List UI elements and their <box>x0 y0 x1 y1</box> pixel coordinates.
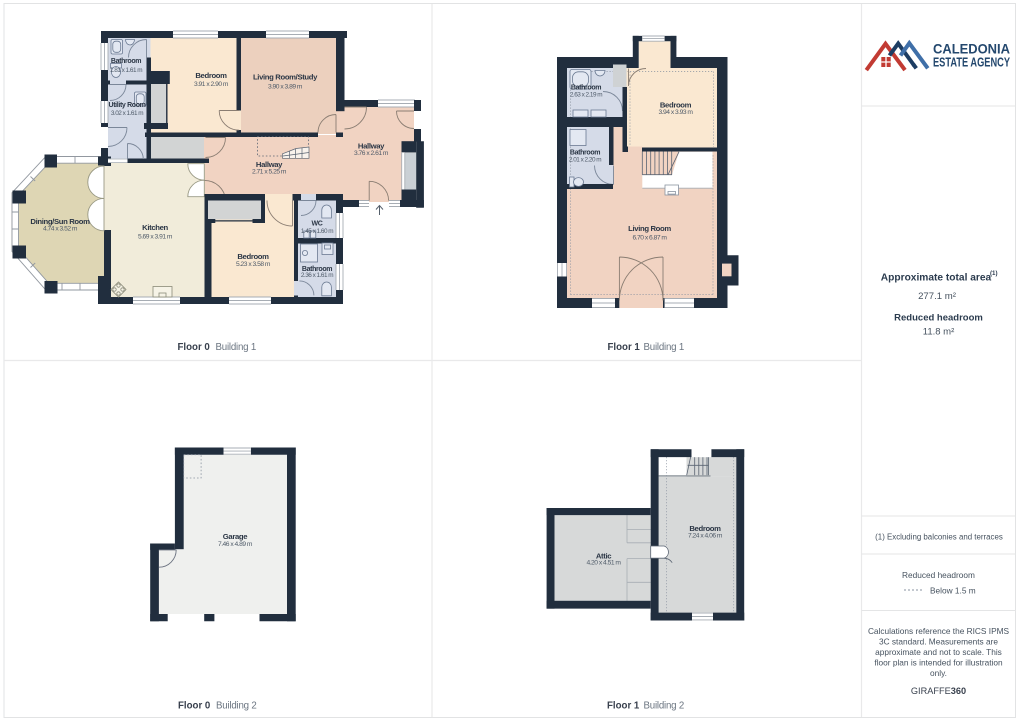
svg-text:Living Room: Living Room <box>628 224 671 233</box>
svg-text:Utility Room: Utility Room <box>108 102 145 109</box>
svg-text:Building 2: Building 2 <box>216 701 257 712</box>
svg-text:Garage: Garage <box>223 532 248 541</box>
svg-text:Calculations reference the RIC: Calculations reference the RICS IPMS <box>868 626 1010 636</box>
svg-text:Floor 0: Floor 0 <box>178 701 210 712</box>
svg-text:Kitchen: Kitchen <box>142 223 168 232</box>
svg-text:2.71 x 5.25 m: 2.71 x 5.25 m <box>252 169 287 176</box>
svg-text:Building 1: Building 1 <box>644 342 685 353</box>
svg-text:3.76 x 2.61 m: 3.76 x 2.61 m <box>354 150 389 157</box>
svg-text:Bedroom: Bedroom <box>660 101 692 110</box>
svg-text:11.8 m²: 11.8 m² <box>923 327 955 338</box>
svg-text:(1) Excluding balconies and te: (1) Excluding balconies and terraces <box>875 533 1003 542</box>
svg-text:6.70 x 6.87 m: 6.70 x 6.87 m <box>632 235 667 242</box>
svg-text:3.90 x 3.89 m: 3.90 x 3.89 m <box>268 84 303 91</box>
svg-text:Building 1: Building 1 <box>216 342 257 353</box>
svg-text:Bedroom: Bedroom <box>237 252 269 261</box>
svg-text:Bedroom: Bedroom <box>195 71 227 80</box>
svg-text:4.74 x 3.52 m: 4.74 x 3.52 m <box>43 226 78 233</box>
svg-text:3C standard. Measurements are: 3C standard. Measurements are <box>879 637 998 647</box>
svg-text:only.: only. <box>930 668 947 678</box>
svg-text:4.20 x 4.51 m: 4.20 x 4.51 m <box>586 560 621 567</box>
svg-text:7.46 x 4.89 m: 7.46 x 4.89 m <box>218 541 253 548</box>
svg-text:3.94 x 3.93 m: 3.94 x 3.93 m <box>658 109 693 116</box>
svg-text:Floor 1: Floor 1 <box>607 701 640 712</box>
svg-text:3.02 x 1.61 m: 3.02 x 1.61 m <box>111 110 143 117</box>
svg-text:(1): (1) <box>990 270 998 277</box>
svg-text:Below 1.5 m: Below 1.5 m <box>930 586 976 596</box>
svg-text:1.45 x 1.60 m: 1.45 x 1.60 m <box>301 228 333 235</box>
svg-text:2.36 x 1.61 m: 2.36 x 1.61 m <box>301 272 333 279</box>
svg-text:3.91 x 2.90 m: 3.91 x 2.90 m <box>194 81 229 88</box>
svg-text:Reduced headroom: Reduced headroom <box>902 570 975 580</box>
svg-text:WC: WC <box>312 221 323 228</box>
svg-text:Floor 1: Floor 1 <box>608 342 641 353</box>
svg-text:Building 2: Building 2 <box>644 701 685 712</box>
svg-text:Floor 0: Floor 0 <box>178 342 210 353</box>
svg-text:5.69 x 3.91 m: 5.69 x 3.91 m <box>138 234 173 241</box>
svg-text:1.81 x 1.61 m: 1.81 x 1.61 m <box>110 67 142 74</box>
svg-text:Living Room/Study: Living Room/Study <box>253 73 318 82</box>
svg-text:277.1 m²: 277.1 m² <box>918 291 957 302</box>
svg-text:ESTATE AGENCY: ESTATE AGENCY <box>933 55 1010 69</box>
svg-text:Approximate total area: Approximate total area <box>881 273 992 284</box>
svg-text:Bathroom: Bathroom <box>111 58 141 65</box>
svg-text:7.24 x 4.06 m: 7.24 x 4.06 m <box>688 532 723 539</box>
svg-text:2.01 x 2.20 m: 2.01 x 2.20 m <box>569 156 601 163</box>
svg-text:Reduced headroom: Reduced headroom <box>894 313 983 324</box>
svg-text:5.23 x 3.58 m: 5.23 x 3.58 m <box>236 261 271 268</box>
svg-text:approximate and not to scale.: approximate and not to scale. This <box>875 647 1002 657</box>
svg-text:2.63 x 2.19 m: 2.63 x 2.19 m <box>570 91 602 98</box>
svg-text:floor plan is intended for ill: floor plan is intended for illustration <box>874 658 1003 668</box>
svg-text:GIRAFFE360: GIRAFFE360 <box>911 686 966 696</box>
